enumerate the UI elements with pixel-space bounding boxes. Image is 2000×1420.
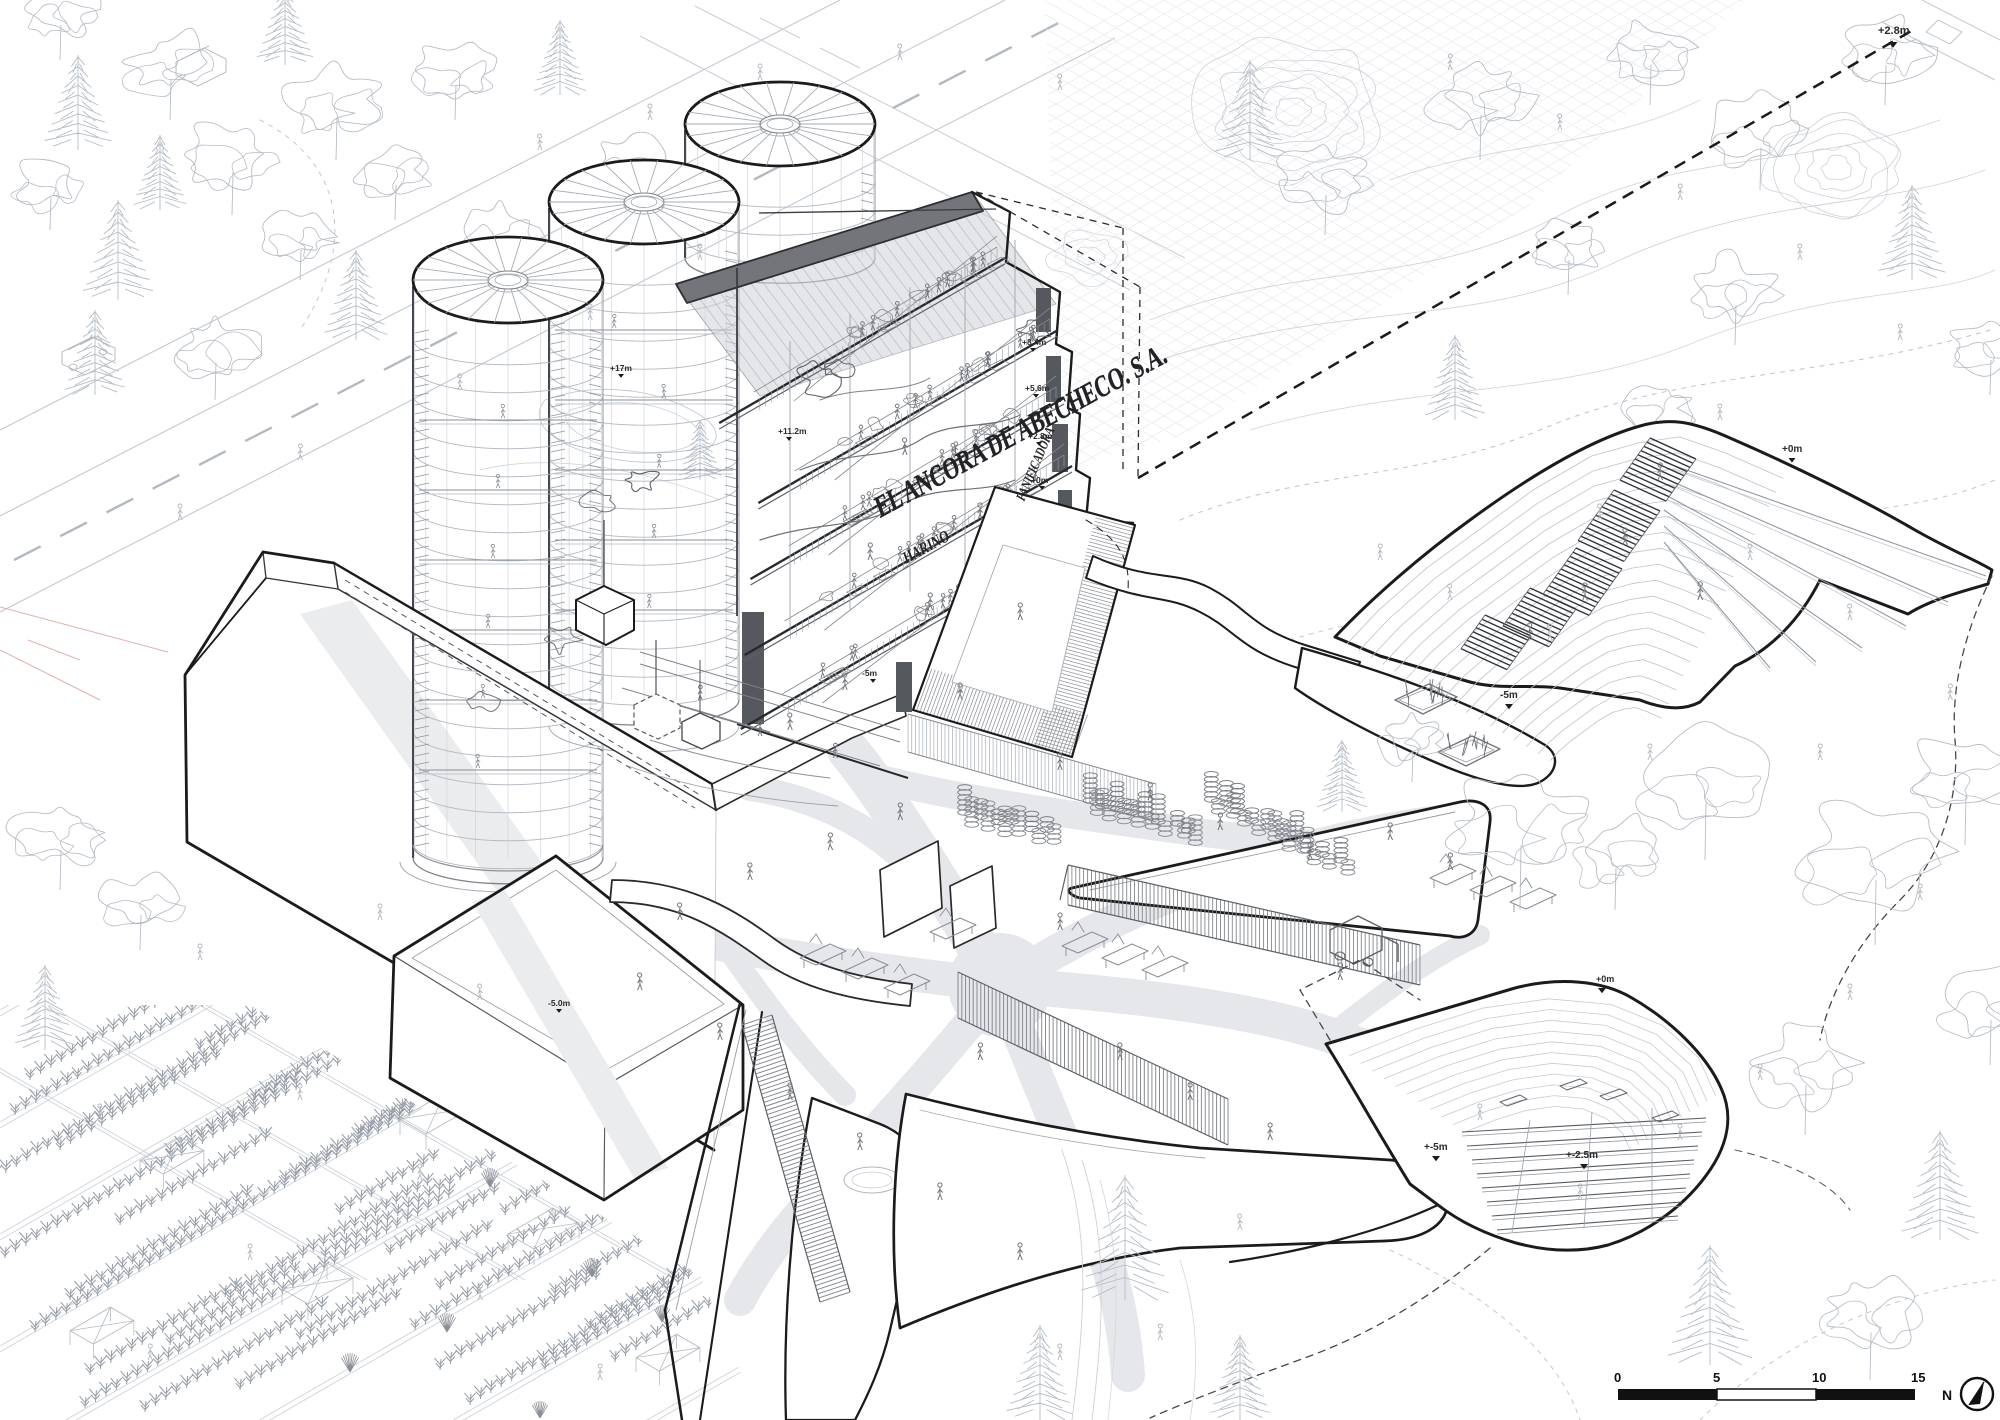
svg-text:+5.6m: +5.6m — [1025, 383, 1050, 393]
svg-text:N: N — [1942, 1387, 1952, 1403]
svg-text:0: 0 — [1614, 1370, 1621, 1385]
svg-text:15: 15 — [1911, 1370, 1925, 1385]
svg-text:+-2.5m: +-2.5m — [1566, 1150, 1598, 1161]
svg-text:-5m: -5m — [862, 668, 878, 678]
svg-text:+-5m: +-5m — [1424, 1142, 1448, 1153]
svg-text:+2.8m: +2.8m — [1028, 431, 1053, 441]
svg-text:+0m: +0m — [1031, 475, 1049, 485]
svg-text:+0m: +0m — [1782, 444, 1802, 455]
svg-text:-5.0m: -5.0m — [548, 998, 571, 1008]
svg-text:+0m: +0m — [1596, 974, 1614, 984]
svg-text:+11.2m: +11.2m — [778, 426, 807, 436]
svg-text:10: 10 — [1812, 1370, 1826, 1385]
svg-text:+2.8m: +2.8m — [1878, 25, 1910, 37]
svg-text:+8.4m: +8.4m — [1022, 337, 1047, 347]
svg-text:+17m: +17m — [610, 363, 632, 373]
svg-text:-5m: -5m — [1500, 690, 1518, 701]
svg-text:5: 5 — [1713, 1370, 1720, 1385]
